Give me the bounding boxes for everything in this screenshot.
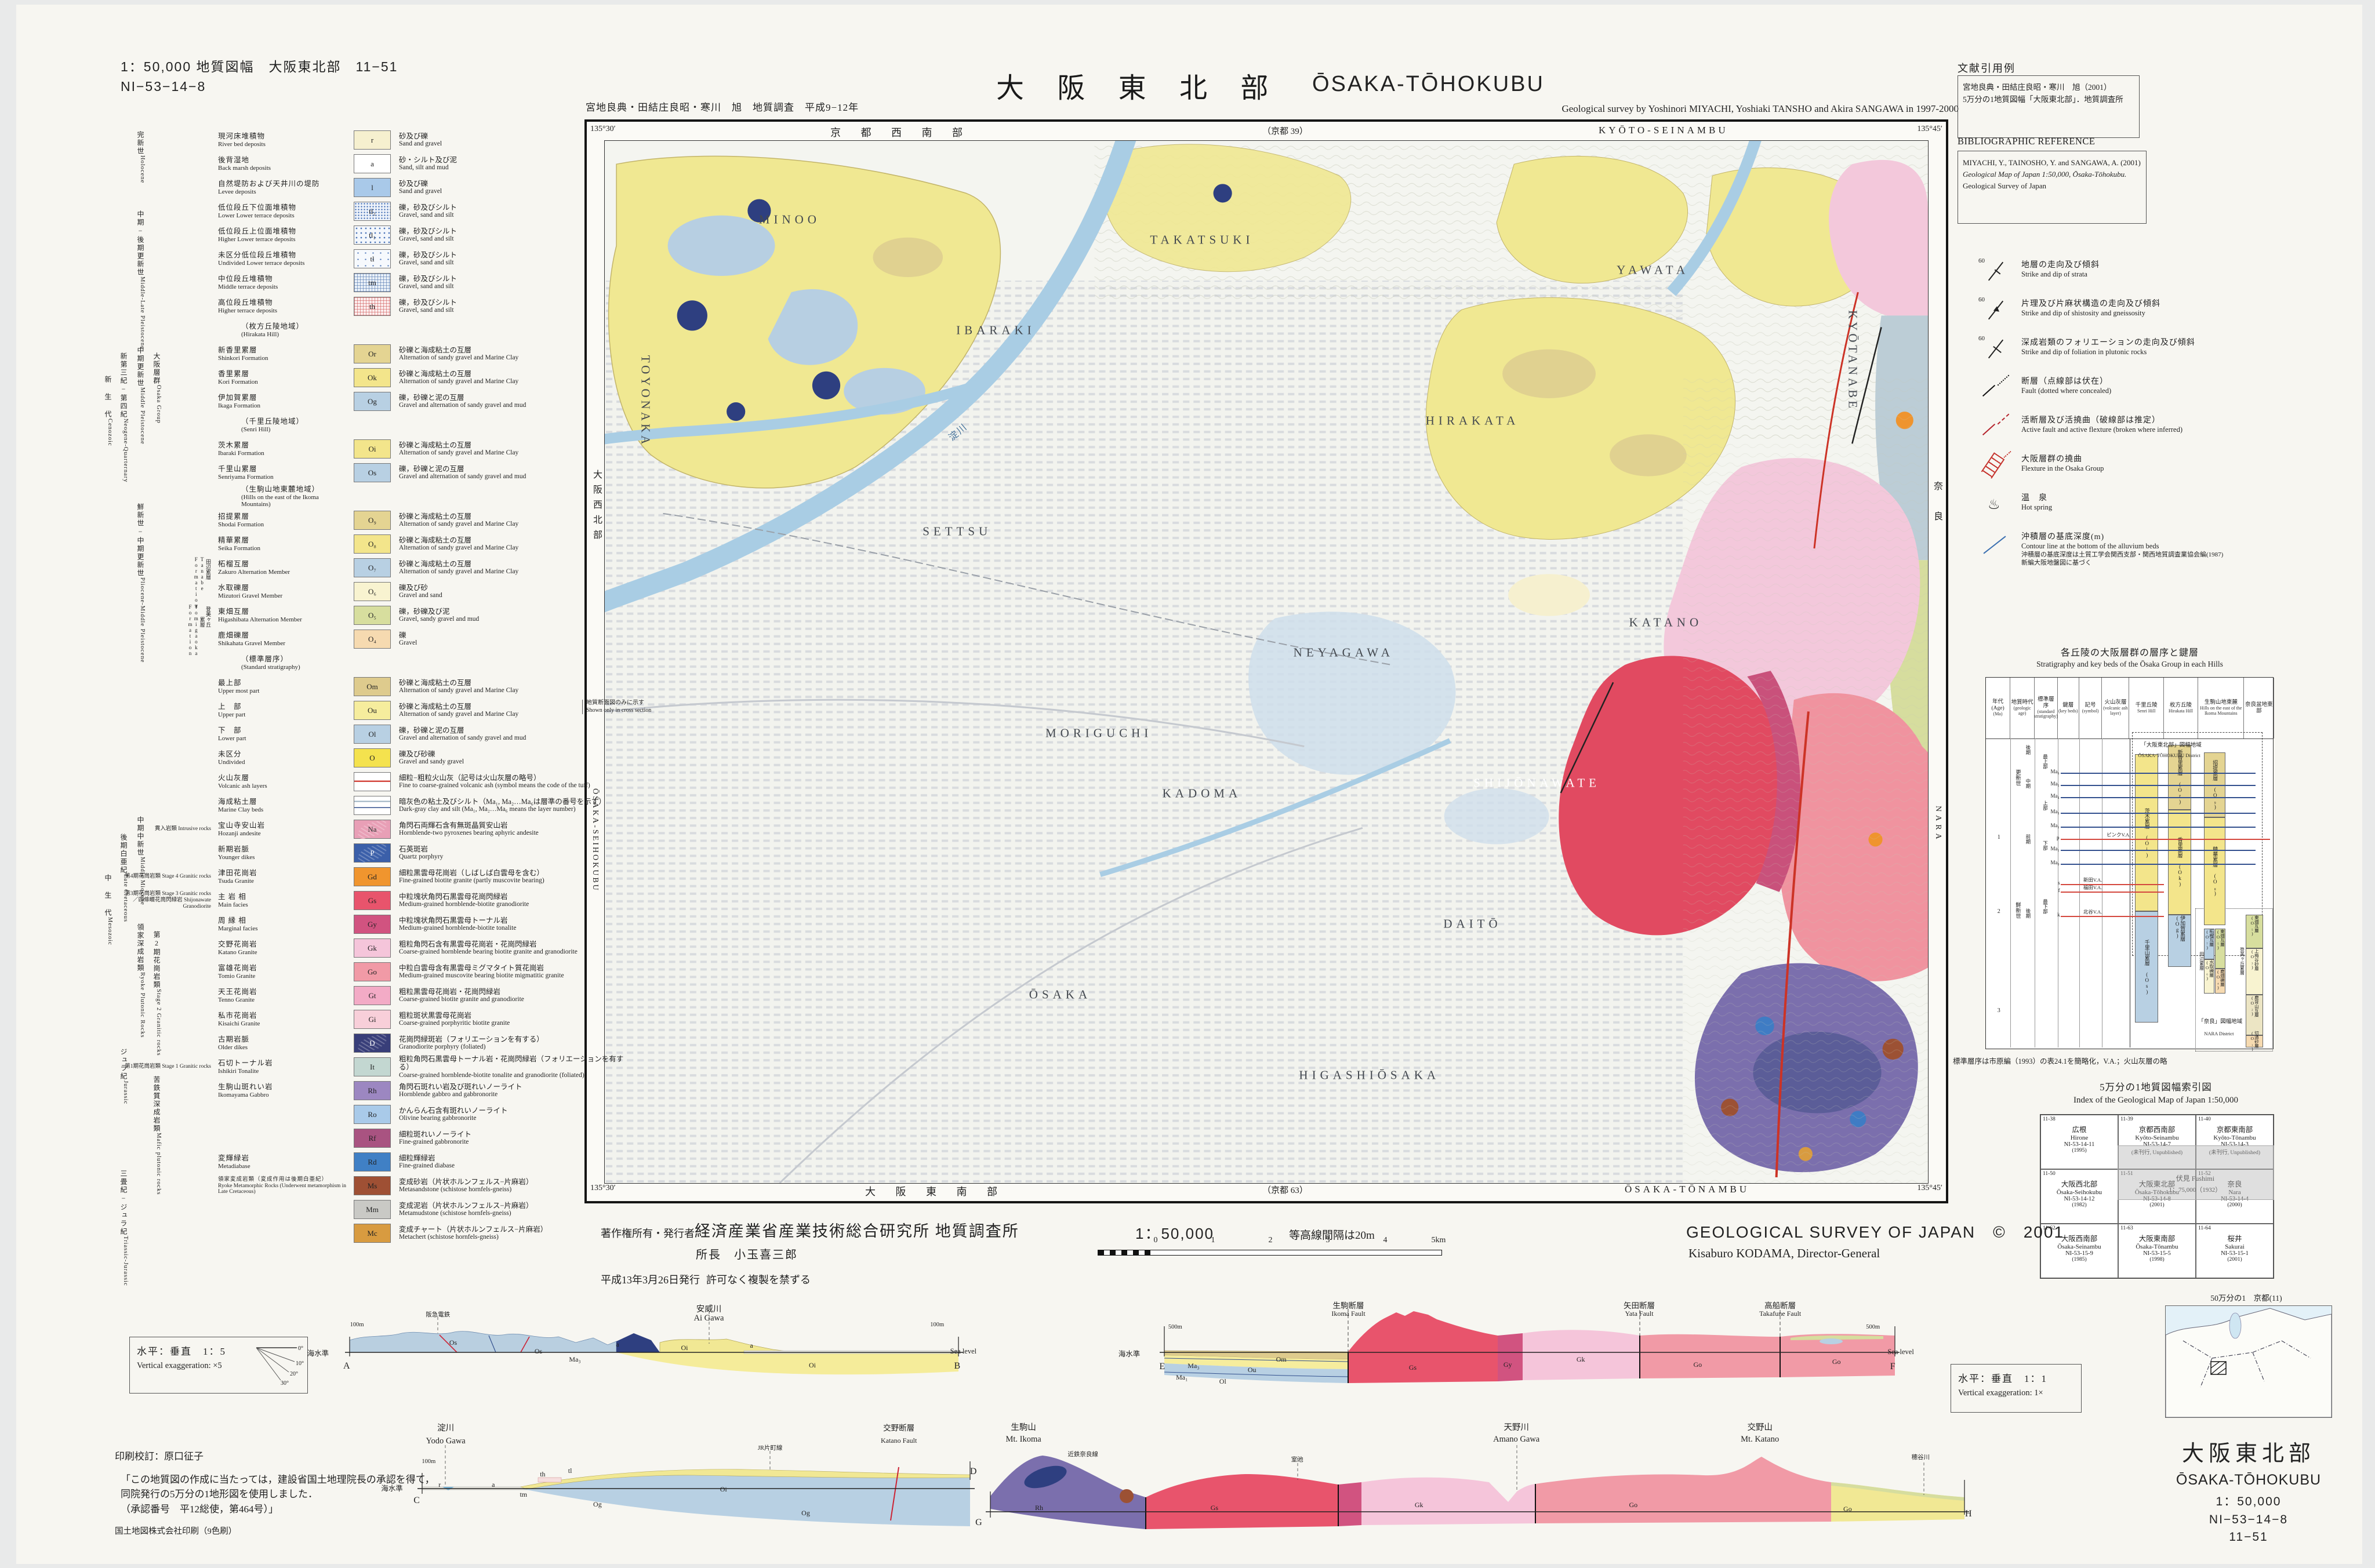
section-label: 室池 — [1291, 1455, 1303, 1464]
section-label: tl — [568, 1467, 572, 1475]
legend-unit-code: O₆ — [368, 587, 376, 596]
strat-chart-title-ja: 各丘陵の大阪層群の層序と鍵層 — [1976, 645, 2283, 659]
svg-text:0°: 0° — [298, 1345, 303, 1352]
legend-group-label: 第4期花崗岩類 Stage 4 Granitic rocks — [124, 874, 211, 880]
legend-swatch: Gi — [354, 1010, 391, 1029]
legend-unit-code: Gd — [368, 872, 377, 882]
legend-row: 鹿畑礫層 Shikahata Gravel Member O₄ 礫 Gravel — [124, 627, 634, 651]
legend-row: Mc 変成チャート（片状ホルンフェルス−片麻岩） Metachert (schi… — [124, 1221, 634, 1245]
legend-unit-code: Gs — [368, 896, 376, 905]
legend-lithology: 砂礫と海成粘土の互層 Alternation of sandy gravel a… — [399, 346, 634, 362]
section-label: Gy — [1504, 1360, 1512, 1369]
section-label: Go — [1629, 1501, 1637, 1509]
legend-row: 未区分 Undivided O 礫及び砂礫 Gravel and sandy g… — [124, 746, 634, 770]
strat-chart-label: NARA District — [2204, 1031, 2234, 1036]
strat-chart-label: 鮮新世 — [2013, 902, 2021, 919]
symbol-description: 大阪層群の撓曲 Flexture in the Osaka Group — [2013, 453, 2104, 473]
legend-unit-code: Rf — [369, 1134, 376, 1143]
legend-unit-code: O₅ — [368, 611, 376, 620]
section-label: Yodo Gawa — [426, 1436, 466, 1446]
legend-swatch: Gd — [354, 867, 391, 886]
section-label: Gk — [1415, 1501, 1423, 1509]
strat-formation-bar: 東畑互層 (O₅) — [2246, 915, 2263, 949]
legend-row: Rf 細粒斑れいノーライト Fine-grained gabbronorite — [124, 1126, 634, 1150]
strat-chart-label: 後期 — [2025, 745, 2032, 755]
print-approval-note: 印刷校訂：原口征子 「この地質図の作成に当たっては，建設省国土地理院長の承認を得… — [115, 1449, 521, 1538]
print-proofreader: 印刷校訂：原口征子 — [115, 1449, 521, 1464]
symbol-description: 地層の走向及び傾斜 Strike and dip of strata — [2013, 259, 2100, 279]
section-label: Amano Gawa — [1493, 1435, 1539, 1445]
strat-chart-label: 更新世 — [2013, 769, 2021, 786]
legend-lithology: 礫 Gravel — [399, 631, 634, 647]
index-sheet-cell: 11-38 広根 Hirone NI-53-14-11 (1995) — [2040, 1115, 2118, 1169]
section-label: Os — [449, 1338, 457, 1347]
legend-row: 低位段丘下位面堆積物 Lower Lower terrace deposits … — [124, 199, 634, 223]
publisher-label: 著作権所有・発行者 — [601, 1225, 695, 1240]
legend-unit-name: 交野花崗岩 Katano Granite — [218, 940, 347, 955]
section-label: Go — [1832, 1358, 1841, 1366]
legend-lithology: 粗粒角閃石含有黒雲母花崗岩・花崗閃緑岩 Coarse-grained hornb… — [399, 940, 634, 956]
section-label: 100m — [350, 1322, 364, 1328]
strat-column-header: 枚方丘陵Hirakata Hill — [2164, 678, 2198, 738]
legend-group-label: 登美ヶ丘累層 Tomigaoka Formation — [187, 604, 211, 627]
longitude-east: 135°45′ — [1917, 125, 1942, 134]
cross-section-ef: 生駒断層Ikoma Fault矢田断層Yata Fault高船断層Takafun… — [1164, 1303, 1895, 1407]
section-label: F — [1890, 1362, 1895, 1372]
legend-row: （枚方丘陵地域） (Hirakata Hill) — [124, 318, 634, 342]
strat-chart-footnote: 標準層序は市原編（1993）の表24.1を簡略化，V.A.；火山灰層の略 — [1953, 1055, 2336, 1066]
title-block-scale: 1：50,000 — [2162, 1492, 2336, 1509]
section-label: 安威川 — [696, 1303, 722, 1315]
sheet-number-line1: 1：50,000 地質図幅 大阪東北部 11−51 — [121, 56, 398, 75]
legend-unit-name: 茨木累層 Ibaraki Formation — [218, 441, 347, 456]
adjoining-sheet-right-en: NARA — [1933, 806, 1942, 843]
map-title-romanized: ŌSAKA-TŌHOKUBU — [1312, 72, 1545, 97]
legend-row: 富雄花崗岩 Tomio Granite Go 中粒白雲母含有黒雲母ミグマタイト質… — [124, 960, 634, 984]
legend-row: 低位段丘上位面堆積物 Higher Lower terrace deposits… — [124, 223, 634, 247]
section-label: 交野断層 — [883, 1421, 914, 1433]
legend-unit-name: 天王花崗岩 Tenno Granite — [218, 988, 347, 1003]
legend-unit-name: 鹿畑礫層 Shikahata Gravel Member — [218, 631, 347, 646]
legend-lithology: 細粒黒雲母花崗岩（しばしば白雲母を含む） Fine-grained biotit… — [399, 869, 634, 885]
section-label: 生駒山 — [1011, 1421, 1036, 1433]
svg-text:20°: 20° — [290, 1371, 298, 1377]
title-block-sheet-number: 11−51 — [2162, 1530, 2336, 1544]
index-sheet-cell: 11-50 大阪西北部 Ōsaka-Seihokubu NI-53-14-12 … — [2040, 1169, 2118, 1224]
legend-lithology: 砂礫と海成粘土の互層 Alternation of sandy gravel a… — [399, 441, 634, 457]
legend-swatch: It — [354, 1057, 391, 1076]
legend-unit-name: 周 縁 相 Marginal facies — [218, 916, 347, 932]
legend-swatch: Oi — [354, 439, 391, 459]
legend-unit-code: Ms — [368, 1181, 377, 1191]
strat-chart-label: 中期 — [2025, 778, 2032, 788]
section-label: 500m — [1866, 1324, 1880, 1330]
locator-map-title: 50万分の1 京都(11) — [2162, 1291, 2331, 1303]
legend-row: 貫入岩類 Intrusive rocks 宝山寺安山岩 Hozanji ande… — [124, 817, 634, 841]
index-sheet-cell: 11-64 桜井 Sakurai NI-53-15-1 (2001) — [2196, 1224, 2274, 1278]
legend-row: （生駒山地東麓地域） (Hills on the east of the Iko… — [124, 485, 634, 508]
symbol-row: 断層（点線部は伏在） Fault (dotted where concealed… — [1980, 375, 2351, 414]
legend-group-label: 第1期花崗岩類 Stage 1 Granitic rocks — [124, 1064, 211, 1070]
legend-row: 最上部 Upper most part Om 砂礫と海成粘土の互層 Altern… — [124, 675, 634, 698]
legend-unit-code: Rh — [368, 1086, 376, 1096]
index-sheet-cell: 11-39 京都西南部 Kyōto-Seinambu NI-53-14-7 (未… — [2118, 1115, 2196, 1169]
legend-swatch: Gk — [354, 938, 391, 958]
legend-swatch: O — [354, 748, 391, 767]
section-label: 海水準 — [1118, 1348, 1141, 1359]
legend-row: 水取礫層 Mizutori Gravel Member O₆ 礫及び砂 Grav… — [124, 580, 634, 603]
symbol-row: 60 片理及び片麻状構造の走向及び傾斜 Strike and dip of sh… — [1980, 297, 2351, 336]
legend-unit-name: 古期岩脈 Older dikes — [218, 1035, 347, 1050]
strat-chart-label: 前期 — [2025, 834, 2032, 844]
legend-unit-code: l — [371, 183, 373, 192]
section-label: E — [1159, 1362, 1165, 1372]
legend-row: 自然堤防および天井川の堤防 Levee deposits l 砂及び礫 Sand… — [124, 176, 634, 199]
legend-row: 招提累層 Shodai Formation O₉ 砂礫と海成粘土の互層 Alte… — [124, 508, 634, 532]
legend-lithology: 中粒塊状角閃石黒雲母花崗閃緑岩 Medium-grained hornblend… — [399, 893, 634, 908]
legend-row: 下 部 Lower part Ol 礫，砂礫と泥の互層 Gravel and a… — [124, 722, 634, 746]
section-label: Mt. Katano — [1741, 1435, 1779, 1445]
strat-column-header: 生駒山地東麓Hills on the east of the Ikoma Mou… — [2198, 678, 2244, 738]
symbol-glyph-icon — [1980, 453, 2013, 479]
strat-formation-bar: 鹿畑礫層 (O₄) — [2215, 969, 2225, 994]
section-label: Og — [801, 1509, 810, 1518]
legend-lithology: 砂及び礫 Sand and gravel — [399, 180, 634, 195]
citation-example-box: 宮地良典・田結庄良昭・寒川 旭（2001） 5万分の1地質図幅「大阪東北部」．地… — [1958, 75, 2140, 138]
legend-unit-name: 低位段丘上位面堆積物 Higher Lower terrace deposits — [218, 227, 347, 242]
section-label: 500m — [1168, 1324, 1182, 1330]
section-label: Gs — [1211, 1504, 1218, 1512]
legend-unit-code: Gy — [368, 920, 377, 929]
cross-section-gh: 生駒山Mt. Ikoma近鉄奈良線室池天野川Amano Gawa交野山Mt. K… — [990, 1422, 1964, 1549]
legend-swatch: Na — [354, 820, 391, 839]
locator-map — [2165, 1305, 2332, 1418]
legend-lithology: 砂礫と海成粘土の互層 Alternation of sandy gravel a… — [399, 536, 634, 552]
symbol-glyph-icon — [1980, 414, 2013, 441]
legend-row: 伊加賀累層 Ikaga Formation Og 礫，砂礫と泥の互層 Grave… — [124, 390, 634, 413]
strat-chart-label: 1 — [1998, 834, 2000, 841]
legend-swatch: tl — [354, 249, 391, 268]
cross-section-ef-artwork — [1164, 1303, 1895, 1407]
legend-row: 現河床堆積物 River bed deposits r 砂及び礫 Sand an… — [124, 128, 634, 152]
section-label: 天野川 — [1504, 1421, 1529, 1433]
geological-map-sheet: 1：50,000 地質図幅 大阪東北部 11−51 NI−53−14−8 大 阪… — [16, 5, 2362, 1564]
legend-unit-code: O₉ — [368, 516, 376, 525]
section-label: Ai Gawa — [694, 1314, 724, 1323]
legend-unit-name: 千里山累層 Senriyama Formation — [218, 465, 347, 480]
legend-unit-code: Om — [366, 682, 378, 692]
legend-row: 古期岩脈 Older dikes D 花崗閃緑斑岩（フォリエーションを有する） … — [124, 1031, 634, 1055]
copy-restriction: 許可なく複製を禁ずる — [706, 1272, 811, 1287]
legend-unit-code: a — [371, 159, 374, 169]
strat-column-header: 地質時代(geologic age) — [2010, 678, 2035, 738]
legend-row: 香里累層 Kori Formation Ok 砂礫と海成粘土の互層 Altern… — [124, 366, 634, 390]
legend-lithology: 細粒−粗粒火山灰（記号は火山灰層の略号） Fine to coarse-grai… — [399, 774, 634, 790]
strat-formation-bar: 登美ヶ丘累層 — [2239, 915, 2245, 1007]
legend-swatch: Ok — [354, 368, 391, 387]
vertical-exaggeration-box-right: 水平：垂直 1：1 Vertical exaggeration: 1× — [1951, 1364, 2082, 1413]
adjoining-sheet-bottom-code: （京都 63） — [1262, 1184, 1308, 1196]
legend-unit-name: 精華累層 Seika Formation — [218, 536, 347, 551]
legend-unit-code: Ol — [369, 730, 376, 739]
index-sheet-cell: 11-52 奈良 Nara NI-53-14-4 (2000) — [2196, 1169, 2274, 1224]
svg-text:10°: 10° — [296, 1360, 304, 1367]
legend-unit-name: 低位段丘下位面堆積物 Lower Lower terrace deposits — [218, 203, 347, 219]
legend-lithology: 粗粒斑状黒雲母花崗岩 Coarse-grained porphyritic bi… — [399, 1012, 634, 1027]
longitude-east: 135°45′ — [1917, 1184, 1942, 1193]
legend-unit-name: 下 部 Lower part — [218, 726, 347, 741]
legend-swatch: a — [354, 154, 391, 173]
legend-unit-name: 未区分 Undivided — [218, 750, 347, 765]
legend-unit-code: tl — [370, 254, 374, 264]
symbol-row: 温 泉 Hot spring — [1980, 492, 2351, 530]
legend-swatch: Gt — [354, 986, 391, 1005]
legend-unit-code: Ro — [368, 1110, 376, 1119]
legend-swatch: O₇ — [354, 558, 391, 577]
symbol-glyph-icon — [1980, 530, 2013, 557]
bib-line1: MIYACHI, Y., TAINOSHO, Y. and SANGAWA, A… — [1963, 157, 2141, 169]
legend-swatch: Ms — [354, 1176, 391, 1195]
legend-unit-name: （枚方丘陵地域） (Hirakata Hill) — [218, 322, 347, 337]
geology-artwork — [605, 141, 1928, 1183]
strat-chart-label: 「奈良」図幅地域 — [2198, 1017, 2242, 1025]
legend-unit-name: 宝山寺安山岩 Hozanji andesite — [218, 821, 347, 836]
legend-unit-name: （千里丘陵地域） (Senri Hill) — [218, 417, 347, 432]
strat-chart-label: ŌSAKA-TŌHOKUBU District — [2138, 752, 2200, 758]
era-label: 中 生 代 Mesozoic — [103, 874, 113, 1210]
section-label: Rh — [1035, 1504, 1043, 1512]
symbol-description: 断層（点線部は伏在） Fault (dotted where concealed… — [2013, 375, 2111, 395]
strat-formation-bar: 田辺累層 — [2199, 929, 2204, 994]
section-label: G — [975, 1518, 982, 1528]
survey-credit-english: Geological survey by Yoshinori MIYACHI, … — [1263, 103, 1959, 115]
symbol-glyph-icon — [1980, 492, 2013, 518]
legend-row: 後背湿地 Back marsh deposits a 砂・シルト及び泥 Sand… — [124, 152, 634, 176]
strat-column-header: 奈良盆地東部 — [2244, 678, 2274, 738]
legend-unit-name: 後背湿地 Back marsh deposits — [218, 156, 347, 171]
legend-unit-name: 現河床堆積物 River bed deposits — [218, 132, 347, 147]
legend-unit-name: 主 岩 相 Main facies — [218, 893, 347, 908]
legend-unit-code: O₈ — [368, 540, 376, 549]
legend-swatch: Ou — [354, 701, 391, 720]
legend-unit-code: Gi — [369, 1015, 376, 1024]
legend-unit-code: Ou — [368, 706, 377, 715]
adjoining-sheet-bottom-en: ŌSAKA-TŌNAMBU — [1625, 1184, 1749, 1195]
printer-credit: 国土地図株式会社印刷（9色刷） — [115, 1526, 521, 1538]
strat-formation-bar: 茨木累層 (Oi) — [2135, 754, 2158, 912]
adjoining-sheet-right-ja: 奈 良 — [1930, 481, 1944, 526]
section-label: tm — [520, 1490, 527, 1499]
legend-lithology: 砂・シルト及び泥 Sand, silt and mud — [399, 156, 634, 172]
section-label: Ikoma Fault — [1331, 1309, 1365, 1318]
legend-unit-name: 最上部 Upper most part — [218, 679, 347, 694]
section-label: Takafune Fault — [1759, 1309, 1801, 1318]
section-label: 阪急電鉄 — [426, 1310, 450, 1319]
section-label: a — [616, 1340, 619, 1349]
legend-unit-name: 招提累層 Shodai Formation — [218, 512, 347, 527]
strat-formation-bar: 上梅谷砂層 (O₃) — [2246, 948, 2263, 995]
section-label: Ma₃ — [1187, 1362, 1199, 1370]
strat-chart-body: 茨木累層 (Oi)千里山累層 (Os)新香里累層 (Or)香里累層 (Ok)伊加… — [1986, 738, 2273, 1047]
legend-lithology: 砂礫と海成粘土の互層 Alternation of sandy gravel a… — [399, 512, 634, 528]
legend-lithology: 粗粒黒雲母花崗岩・花崗閃緑岩 Coarse-grained biotite gr… — [399, 988, 634, 1003]
map-symbols-legend: 60 地層の走向及び傾斜 Strike and dip of strata 60… — [1980, 259, 2351, 569]
section-label: a — [750, 1341, 753, 1350]
adjoining-sheet-top-code: （京都 39） — [1262, 125, 1308, 137]
strat-formation-bar: 千里山累層 (Os) — [2135, 911, 2158, 1023]
section-label: Os — [535, 1347, 542, 1356]
legend-lithology: 礫，砂礫と泥の互層 Gravel and alternation of sand… — [399, 394, 634, 409]
legend-swatch: tl₂ — [354, 202, 391, 221]
section-label: H — [1965, 1509, 1972, 1519]
section-label: Og — [593, 1500, 602, 1509]
legend-unit-code: Or — [368, 350, 376, 359]
title-block-name-ja: 大阪東北部 — [2162, 1435, 2336, 1467]
section-label: 交野山 — [1747, 1421, 1773, 1433]
symbol-description: 活断層及び活撓曲（破線部は推定） Active fault and active… — [2013, 414, 2182, 434]
legend-unit-name: 新香里累層 Shinkori Formation — [218, 346, 347, 361]
legend-unit-code: tl₂ — [369, 207, 376, 216]
legend-swatch: P — [354, 843, 391, 863]
section-label: Ol — [1219, 1377, 1226, 1386]
section-label: Sea level — [950, 1347, 976, 1356]
strat-chart-title-en: Stratigraphy and key beds of the Ōsaka G… — [1976, 660, 2283, 669]
legend-swatch: O₅ — [354, 606, 391, 625]
legend-row: 未区分低位段丘堆積物 Undivided Lower terrace depos… — [124, 247, 634, 271]
symbol-glyph-icon: 60 — [1980, 259, 2013, 285]
legend-row: 第3期花崗岩類 Stage 3 Granitic rocks／四條畷花崗閃緑岩 … — [124, 889, 634, 912]
legend-swatch: Og — [354, 392, 391, 411]
legend-lithology: 礫，砂礫と泥の互層 Gravel and alternation of sand… — [399, 465, 634, 481]
adjoining-sheet-top-ja: 京 都 西 南 部 — [830, 125, 971, 140]
section-label: Go — [1693, 1360, 1702, 1369]
legend-row: 天王花崗岩 Tenno Granite Gt 粗粒黒雲母花崗岩・花崗閃緑岩 Co… — [124, 984, 634, 1007]
section-label: 穂谷川 — [1912, 1453, 1930, 1461]
gsj-director: Kisaburo KODAMA, Director-General — [1688, 1246, 1880, 1261]
legend-lithology: かんらん石含有斑れいノーライト Olivine bearing gabbrono… — [399, 1107, 634, 1122]
legend-row: 領家変成岩類（変成作用は後期白亜紀） Ryoke Metamorphic Roc… — [124, 1174, 634, 1198]
legend-lithology: 礫，砂及びシルト Gravel, sand and silt — [399, 275, 634, 290]
legend-swatch: Gs — [354, 891, 391, 910]
era-label: 新 生 代 Cenozoic — [103, 376, 113, 596]
legend-swatch: r — [354, 130, 391, 150]
publisher-organization: 経済産業省産業技術総合研究所 地質調査所 — [695, 1218, 1019, 1241]
symbol-description: 沖積層の基底深度(m) Contour line at the bottom o… — [2013, 530, 2223, 567]
legend-swatch: Rd — [354, 1152, 391, 1172]
legend-lithology: 礫及び砂礫 Gravel and sandy gravel — [399, 750, 634, 766]
legend-lithology: 細粒斑れいノーライト Fine-grained gabbronorite — [399, 1130, 634, 1146]
legend-swatch: Rh — [354, 1081, 391, 1100]
legend-row: 新香里累層 Shinkori Formation Or 砂礫と海成粘土の互層 A… — [124, 342, 634, 366]
legend-row: 高位段丘堆積物 Higher terrace deposits th 礫，砂及び… — [124, 294, 634, 318]
legend-row: 火山灰層 Volcanic ash layers 細粒−粗粒火山灰（記号は火山灰… — [124, 770, 634, 794]
gsj-copyright: GEOLOGICAL SURVEY OF JAPAN © 2001 — [1686, 1220, 2064, 1243]
citation-example-heading: 文献引用例 — [1958, 60, 2016, 75]
legend-lithology: 石英斑岩 Quartz porphyry — [399, 845, 634, 861]
scalebar-tick: 2 — [1269, 1236, 1273, 1245]
title-block-series: NI−53−14−8 — [2162, 1513, 2336, 1527]
section-label: Ma₃ — [569, 1355, 580, 1364]
legend: 現河床堆積物 River bed deposits r 砂及び礫 Sand an… — [124, 128, 634, 1245]
scalebar-tick: 1 — [1211, 1236, 1215, 1245]
symbol-glyph-icon — [1980, 375, 2013, 402]
legend-swatch: O₈ — [354, 534, 391, 554]
strat-column-header: 標準層序(standard stratigraphy) — [2035, 678, 2058, 738]
symbol-row: 大阪層群の撓曲 Flexture in the Osaka Group — [1980, 453, 2351, 492]
survey-credit-japanese: 宮地良典・田結庄良昭・寒川 旭 地質調査 平成9−12年 — [586, 99, 859, 114]
legend-swatch: tl₁ — [354, 225, 391, 245]
legend-row: 変輝緑岩 Metadiabase Rd 細粒輝緑岩 Fine-grained d… — [124, 1150, 634, 1174]
index-sheet-cell: 11-51 大阪東北部 Ōsaka-Tōhokubu NI-53-14-8 (2… — [2118, 1169, 2196, 1224]
section-label: Yata Fault — [1625, 1309, 1653, 1318]
section-label: Gk — [1577, 1355, 1585, 1364]
legend-row: 精華累層 Seika Formation O₈ 砂礫と海成粘土の互層 Alter… — [124, 532, 634, 556]
symbol-description: 深成岩類のフォリエーションの走向及び傾斜 Strike and dip of f… — [2013, 336, 2195, 356]
scalebar-tick: 0 — [1154, 1236, 1158, 1245]
legend-unit-code: th — [369, 302, 375, 311]
legend-row: （標準層序） (Standard stratigraphy) — [124, 651, 634, 675]
legend-swatch: O₆ — [354, 582, 391, 601]
legend-unit-name: 東畑互層 Higashibata Alternation Member — [218, 607, 347, 623]
legend-swatch — [354, 796, 391, 815]
legend-lithology: 中粒白雲母含有黒雲母ミグマタイト質花崗岩 Medium-grained musc… — [399, 964, 634, 980]
legend-lithology: 礫，砂及びシルト Gravel, sand and silt — [399, 227, 634, 243]
strat-chart-header: 年代 (Age)(Ma) 地質時代(geologic age) 標準層序(sta… — [1986, 678, 2273, 739]
legend-lithology: 暗灰色の粘土及びシルト（Ma₁, Ma₂…Ma₆は層準の番号を示す） Dark-… — [399, 798, 634, 813]
section-label: th — [540, 1470, 545, 1479]
section-label: Oi — [720, 1485, 727, 1494]
section-label: Mt. Ikoma — [1006, 1435, 1041, 1445]
strat-formation-bar: 鹿背山互層 (O₂) — [2246, 995, 2263, 1035]
legend-unit-code: tm — [368, 278, 376, 288]
legend-unit-code: It — [370, 1063, 375, 1072]
symbol-description: 温 泉 Hot spring — [2013, 492, 2052, 512]
legend-unit-code: Oi — [369, 445, 376, 454]
section-label: 淀川 — [437, 1421, 454, 1434]
legend-row: Mm 変成泥岩（片状ホルンフェルス−片麻岩） Metamudstone (sch… — [124, 1198, 634, 1221]
sheet-number-line2: NI−53−14−8 — [121, 79, 206, 94]
cross-section-gh-artwork — [990, 1422, 1964, 1549]
strat-formation-bar: 切通砂層 (O₁) — [2246, 1035, 2263, 1047]
section-label: Oi — [809, 1361, 816, 1370]
legend-swatch: tm — [354, 273, 391, 292]
strat-chart-label: 最上部 — [2042, 754, 2049, 769]
legend-unit-code: O₄ — [368, 635, 376, 644]
legend-lithology: 礫及び砂 Gravel and sand — [399, 584, 634, 599]
strat-formation-bar: 香里累層 (Ok) — [2168, 810, 2191, 915]
legend-lithology: 変成泥岩（片状ホルンフェルス−片麻岩） Metamudstone (schist… — [399, 1202, 634, 1217]
legend-lithology: 礫，砂及びシルト Gravel, sand and silt — [399, 251, 634, 267]
map-edge-top: 135°30′ 京 都 西 南 部 （京都 39） KYŌTO-SEINAMBU… — [587, 125, 1946, 140]
strat-formation-bar: 東畑互層 (O₅) — [2215, 929, 2225, 969]
section-label: Ma₁ — [1176, 1373, 1187, 1382]
legend-unit-name: 変輝緑岩 Metadiabase — [218, 1154, 347, 1169]
legend-swatch: O₄ — [354, 630, 391, 649]
legend-group-label: 田辺累層 Tanabe Formation — [193, 556, 211, 580]
map-title-japanese: 大 阪 東 北 部 — [996, 65, 1281, 105]
section-label: Gs — [1409, 1363, 1417, 1372]
strat-column-header: 火山灰層(volcanic ash layer) — [2102, 678, 2129, 738]
legend-row: 私市花崗岩 Kisaichi Granite Gi 粗粒斑状黒雲母花崗岩 Coa… — [124, 1007, 634, 1031]
legend-unit-name: 伊加賀累層 Ikaga Formation — [218, 394, 347, 409]
strat-column-header: 鍵層(key beds) — [2058, 678, 2079, 738]
svg-text:30°: 30° — [281, 1380, 289, 1387]
legend-lithology: 花崗閃緑斑岩（フォリエーションを有する） Granodiorite porphy… — [399, 1035, 634, 1051]
symbol-row: 60 地層の走向及び傾斜 Strike and dip of strata — [1980, 259, 2351, 297]
legend-swatch — [354, 772, 391, 791]
legend-row: 中位段丘堆積物 Middle terrace deposits tm 礫，砂及び… — [124, 271, 634, 294]
legend-row: Ro かんらん石含有斑れいノーライト Olivine bearing gabbr… — [124, 1103, 634, 1126]
